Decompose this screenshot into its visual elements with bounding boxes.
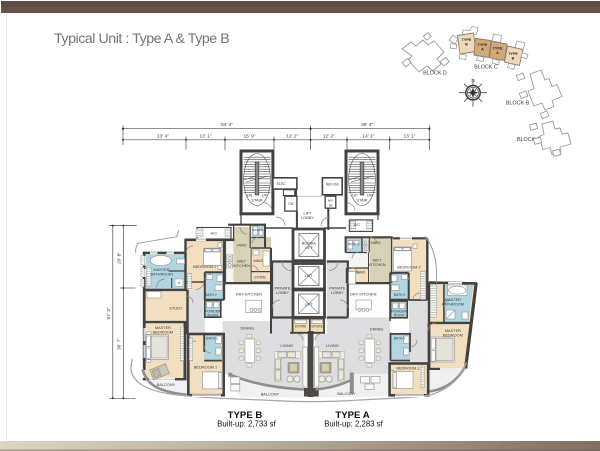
svg-text:CW: CW [288,202,293,206]
svg-text:STAIR: STAIR [356,197,367,202]
svg-text:BEDROOM 2: BEDROOM 2 [193,264,216,269]
svg-text:KITCHEN: KITCHEN [233,263,250,268]
svg-text:BALCONY: BALCONY [337,391,356,396]
svg-text:BATHROOM: BATHROOM [442,301,464,306]
svg-text:BALCONY: BALCONY [157,382,176,387]
svg-text:B: B [465,43,468,47]
svg-text:12' 2": 12' 2" [323,133,335,139]
svg-text:ROOM: ROOM [208,314,219,318]
svg-text:STORE: STORE [295,325,307,329]
svg-text:BLOCK D: BLOCK D [423,71,447,77]
svg-text:A/C: A/C [211,231,218,236]
svg-text:BATH 1: BATH 1 [394,336,406,340]
svg-text:BALCONY: BALCONY [261,391,280,396]
svg-text:BATH 2: BATH 2 [205,293,217,297]
svg-text:ELEC: ELEC [277,182,286,186]
svg-text:SB: SB [329,204,333,208]
svg-text:B: B [512,57,515,61]
svg-text:MAID: MAID [254,258,264,263]
svg-text:BLOCK B: BLOCK B [506,101,530,107]
svg-text:13' 1": 13' 1" [404,133,416,139]
svg-text:39' 4": 39' 4" [361,122,373,128]
svg-text:M/S: M/S [328,199,333,203]
svg-text:BEDROOM 2: BEDROOM 2 [397,264,420,269]
svg-text:TYPE: TYPE [493,47,503,51]
svg-text:BATH 3: BATH 3 [348,242,359,246]
svg-text:36' 7": 36' 7" [117,338,123,350]
svg-text:KITCHEN: KITCHEN [368,262,385,267]
svg-text:BEDROOM: BEDROOM [153,330,173,335]
svg-text:LOBBY: LOBBY [276,290,289,295]
svg-text:DINING: DINING [370,327,384,332]
svg-text:BATH 2: BATH 2 [394,293,406,297]
svg-text:LOBBY: LOBBY [331,290,344,295]
svg-text:LIFT: LIFT [305,245,314,250]
svg-text:A/C: A/C [354,222,361,227]
svg-text:BATH 3: BATH 3 [252,228,263,232]
svg-text:20' 8": 20' 8" [117,252,123,264]
svg-text:A: A [481,48,484,52]
svg-text:DRY KITCHEN: DRY KITCHEN [236,292,262,297]
svg-text:ROOM: ROOM [394,314,405,318]
svg-text:YARD: YARD [236,243,247,248]
svg-text:STORE: STORE [311,325,323,329]
svg-text:Built-up: 2,733 sf: Built-up: 2,733 sf [217,420,276,429]
svg-text:13' 1": 13' 1" [200,133,212,139]
svg-text:BATHROOM: BATHROOM [150,272,172,277]
svg-text:LIFT: LIFT [305,302,314,307]
svg-text:BEDROOM 1: BEDROOM 1 [396,365,419,370]
svg-text:BEDROOM: BEDROOM [443,333,463,338]
svg-text:BATH 1: BATH 1 [206,336,218,340]
svg-text:TYPE: TYPE [462,38,472,42]
svg-text:STORE: STORE [254,276,266,280]
svg-text:TYPE: TYPE [508,52,518,56]
svg-text:15' 9": 15' 9" [244,133,256,139]
svg-text:Built-up: 2,283 sf: Built-up: 2,283 sf [324,420,383,429]
svg-text:57' 3": 57' 3" [106,307,112,319]
svg-text:DRY KITCHEN: DRY KITCHEN [350,292,376,297]
svg-text:DN: DN [367,193,373,198]
svg-text:54' 4": 54' 4" [221,122,233,128]
svg-text:STUDY: STUDY [169,306,183,311]
svg-text:TYPE: TYPE [478,43,488,47]
svg-text:LIVING: LIVING [280,343,293,348]
svg-text:STAIR: STAIR [251,197,262,202]
svg-text:BEDROOM 1: BEDROOM 1 [194,364,217,369]
svg-text:Typical Unit : Type A & Type B: Typical Unit : Type A & Type B [54,31,229,47]
svg-text:LIVING: LIVING [326,343,339,348]
svg-text:14' 1": 14' 1" [362,133,374,139]
svg-text:BLOCK C: BLOCK C [474,65,498,71]
svg-text:UP: UP [262,193,268,198]
svg-text:A: A [496,51,499,55]
svg-text:REFUSE: REFUSE [326,182,339,186]
svg-text:13' 4": 13' 4" [157,133,169,139]
svg-text:LIFT: LIFT [305,273,314,278]
svg-text:12' 2": 12' 2" [286,133,298,139]
svg-text:DINING: DINING [240,326,254,331]
svg-text:YARD: YARD [370,240,381,245]
svg-text:LOBBY: LOBBY [301,215,314,220]
svg-text:MAID: MAID [356,270,366,275]
